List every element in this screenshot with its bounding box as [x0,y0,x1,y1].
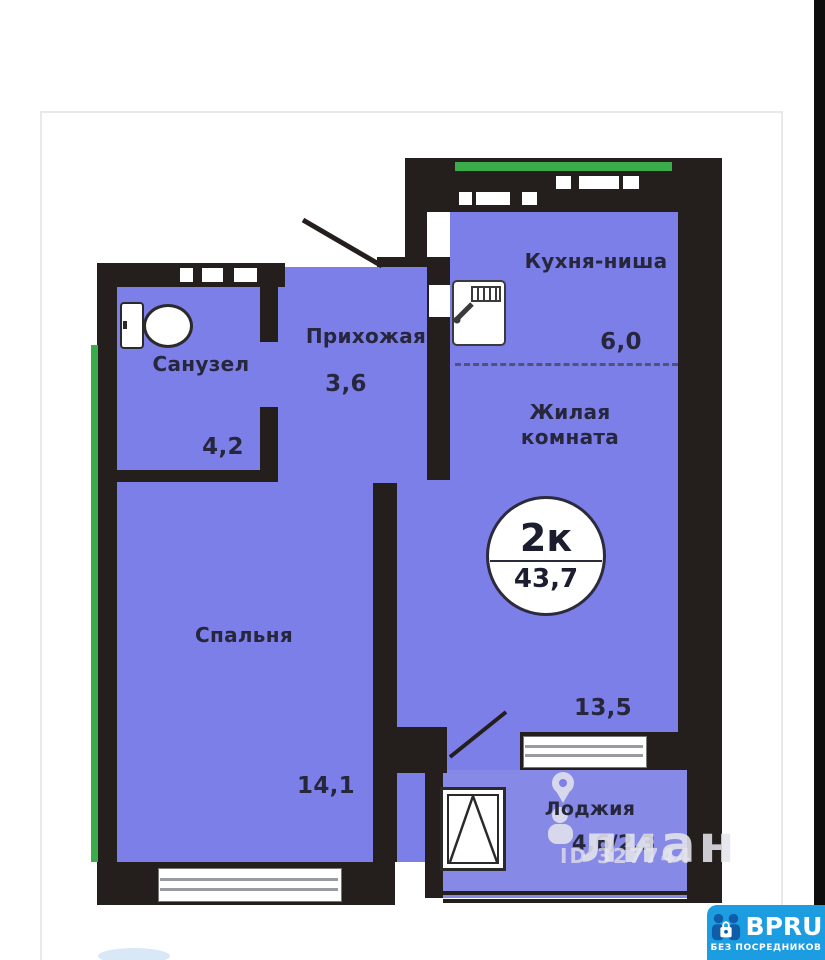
people-lock-icon [710,912,742,942]
room-label-kitchen: Кухня-ниша [525,249,668,273]
badge-room-count: 2к [520,518,572,558]
room-label-bathroom: Санузел [153,352,250,376]
room-area-kitchen: 6,0 [600,329,642,355]
brand-logo-row: BPRU [710,912,823,942]
badge-divider [490,560,602,562]
room-area-hallway: 3,6 [325,371,367,397]
entrance-door-icon [303,220,382,266]
room-label-living-line2: комната [521,425,619,449]
cropped-logo-fragment [98,948,170,960]
room-area-bathroom: 4,2 [202,434,244,460]
badge-total-area: 43,7 [514,564,578,594]
room-area-bedroom: 14,1 [297,773,355,799]
balcony-door-icon [450,712,506,757]
room-area-living: 13,5 [574,695,632,721]
room-label-hallway: Прихожая [306,324,426,348]
brand-name: BPRU [746,914,823,940]
floorplan-image: 2к 43,7 Санузел 4,2 Прихожая 3,6 Кухня-н… [0,0,825,960]
brand-tagline: БЕЗ ПОСРЕДНИКОВ [710,943,821,953]
kitchen-zone-dashed-line [455,363,678,366]
faucet-icon [454,304,473,324]
window-opening-triangle-icon [450,796,497,862]
brand-logo[interactable]: BPRU БЕЗ ПОСРЕДНИКОВ [707,905,825,960]
room-label-living-line1: Жилая [530,400,611,424]
right-edge-strip [814,0,825,906]
apartment-badge: 2к 43,7 [486,496,606,616]
watermark-id: ID 327744 [560,844,693,868]
room-label-bedroom: Спальня [195,623,293,647]
